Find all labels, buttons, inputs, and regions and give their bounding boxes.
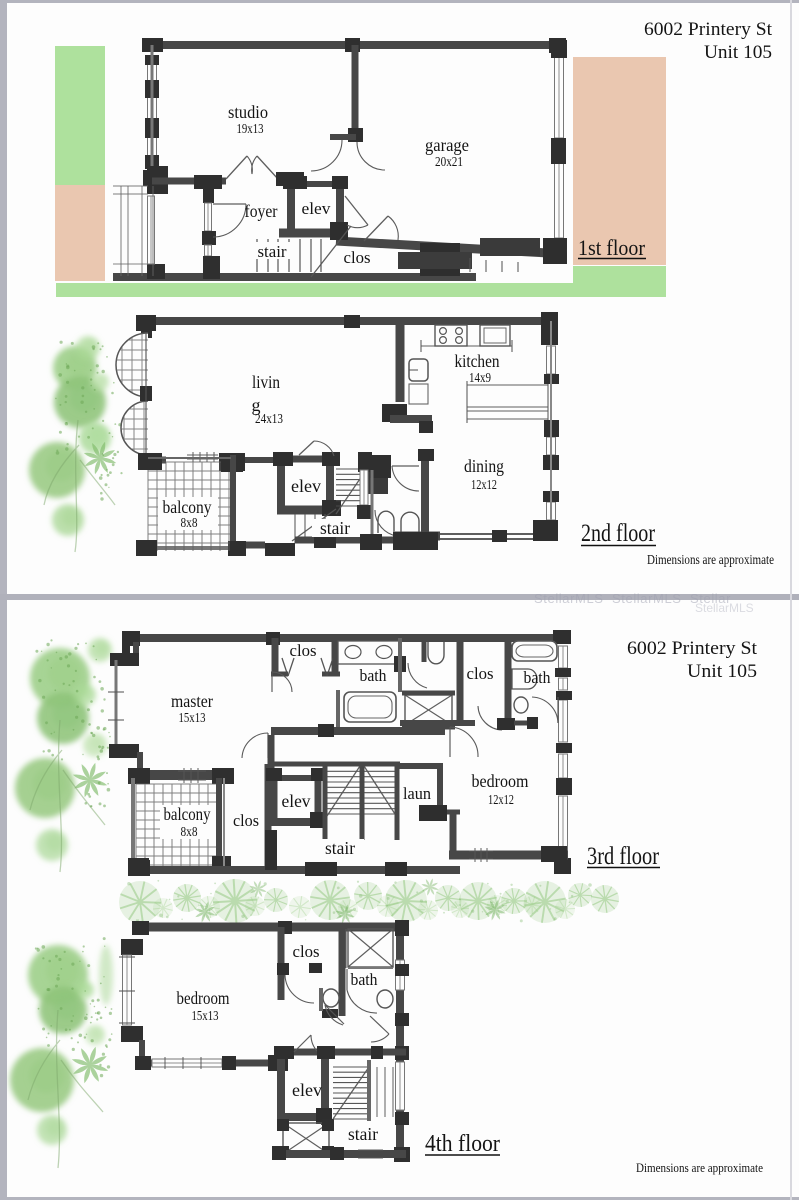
svg-text:elev: elev bbox=[292, 1080, 322, 1100]
svg-text:studio: studio bbox=[228, 102, 268, 122]
svg-text:14x9: 14x9 bbox=[469, 371, 491, 386]
svg-text:12x12: 12x12 bbox=[488, 793, 514, 808]
svg-text:8x8: 8x8 bbox=[181, 516, 198, 531]
svg-text:stair: stair bbox=[348, 1124, 378, 1144]
svg-text:foyer: foyer bbox=[245, 201, 278, 221]
svg-text:elev: elev bbox=[302, 199, 331, 218]
svg-text:Dimensions are approximate: Dimensions are approximate bbox=[636, 1160, 763, 1175]
svg-text:8x8: 8x8 bbox=[181, 825, 198, 840]
svg-text:19x13: 19x13 bbox=[237, 122, 264, 137]
svg-text:laun: laun bbox=[403, 784, 431, 803]
svg-text:15x13: 15x13 bbox=[192, 1009, 219, 1024]
svg-text:Dimensions are approximate: Dimensions are approximate bbox=[647, 553, 774, 568]
svg-text:stair: stair bbox=[258, 242, 287, 261]
svg-text:elev: elev bbox=[282, 791, 311, 811]
svg-text:balcony: balcony bbox=[164, 804, 211, 824]
svg-text:kitchen: kitchen bbox=[455, 351, 500, 371]
svg-text:6002 Printery St: 6002 Printery St bbox=[627, 638, 758, 659]
svg-text:24x13: 24x13 bbox=[255, 412, 283, 427]
svg-text:bedroom: bedroom bbox=[472, 771, 529, 791]
svg-text:Unit 105: Unit 105 bbox=[704, 42, 772, 63]
svg-text:15x13: 15x13 bbox=[179, 711, 206, 726]
svg-text:stair: stair bbox=[325, 838, 355, 858]
svg-text:dining: dining bbox=[464, 456, 504, 476]
svg-text:12x12: 12x12 bbox=[471, 478, 497, 493]
svg-text:clos: clos bbox=[293, 942, 320, 961]
svg-text:clos: clos bbox=[290, 641, 317, 660]
svg-text:bedroom: bedroom bbox=[177, 988, 230, 1008]
svg-text:clos: clos bbox=[233, 811, 259, 830]
svg-text:bath: bath bbox=[351, 970, 378, 989]
svg-text:4th floor: 4th floor bbox=[425, 1131, 500, 1157]
svg-text:garage: garage bbox=[425, 135, 469, 155]
svg-text:balcony: balcony bbox=[163, 497, 212, 517]
svg-text:clos: clos bbox=[344, 248, 371, 267]
svg-text:master: master bbox=[171, 691, 213, 711]
svg-text:elev: elev bbox=[291, 476, 321, 496]
svg-text:1st floor: 1st floor bbox=[578, 235, 646, 260]
svg-text:Unit 105: Unit 105 bbox=[687, 661, 757, 682]
svg-text:20x21: 20x21 bbox=[435, 155, 463, 170]
svg-text:6002 Printery St: 6002 Printery St bbox=[644, 19, 773, 40]
svg-text:livin: livin bbox=[252, 372, 280, 392]
svg-text:clos: clos bbox=[467, 664, 494, 683]
svg-text:stair: stair bbox=[320, 518, 350, 538]
svg-text:2nd floor: 2nd floor bbox=[581, 520, 656, 547]
svg-text:3rd floor: 3rd floor bbox=[587, 843, 660, 870]
svg-text:bath: bath bbox=[524, 668, 551, 687]
svg-text:bath: bath bbox=[360, 666, 387, 685]
